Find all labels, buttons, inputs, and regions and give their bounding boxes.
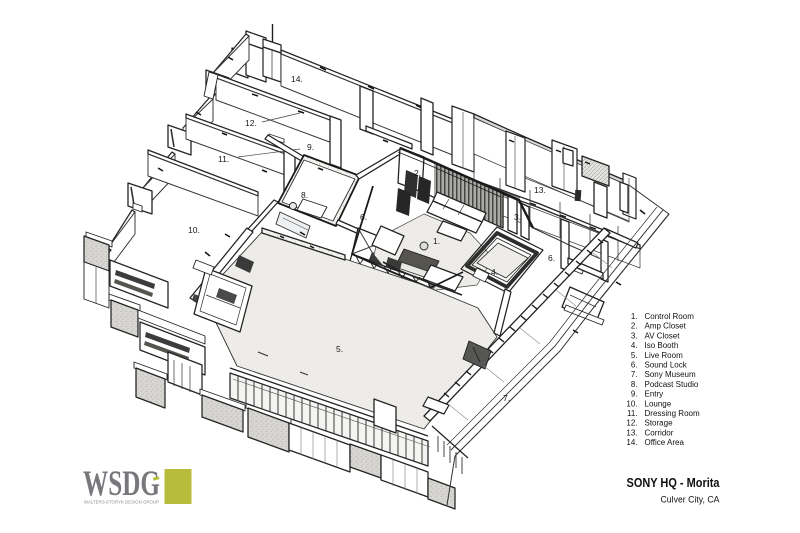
svg-text:12.: 12. (245, 118, 257, 128)
svg-text:5.: 5. (336, 344, 343, 354)
svg-text:4.: 4. (491, 267, 498, 277)
svg-text:Iso Booth: Iso Booth (645, 341, 679, 350)
svg-text:Corridor: Corridor (645, 428, 674, 437)
svg-text:13.: 13. (626, 428, 637, 437)
svg-text:12.: 12. (626, 419, 637, 428)
svg-text:Storage: Storage (645, 419, 674, 428)
svg-text:8.: 8. (631, 380, 638, 389)
svg-text:1.: 1. (631, 312, 638, 321)
svg-text:10.: 10. (188, 225, 200, 235)
svg-text:11.: 11. (218, 154, 229, 164)
svg-text:14.: 14. (291, 74, 303, 84)
svg-text:9.: 9. (631, 390, 638, 399)
svg-text:6.: 6. (631, 361, 638, 370)
svg-text:Culver City, CA: Culver City, CA (661, 495, 720, 505)
svg-text:Lounge: Lounge (645, 399, 672, 408)
svg-text:Podcast Studio: Podcast Studio (645, 380, 699, 389)
svg-text:Control Room: Control Room (645, 312, 695, 321)
svg-text:5.: 5. (631, 351, 638, 360)
svg-text:Amp Closet: Amp Closet (645, 322, 687, 331)
svg-text:Sony Museum: Sony Museum (645, 370, 696, 379)
svg-text:Office Area: Office Area (645, 438, 685, 447)
svg-text:13.: 13. (534, 185, 546, 195)
svg-text:SONY HQ - Morita: SONY HQ - Morita (627, 476, 721, 490)
svg-text:9.: 9. (307, 142, 314, 152)
svg-text:WALTERS-STORYK DESIGN GROUP: WALTERS-STORYK DESIGN GROUP (84, 500, 159, 505)
svg-text:4.: 4. (631, 341, 638, 350)
svg-text:2.: 2. (631, 322, 638, 331)
svg-text:7.: 7. (631, 370, 638, 379)
svg-text:Live Room: Live Room (645, 351, 684, 360)
svg-text:1.: 1. (433, 236, 440, 246)
svg-text:WSDG: WSDG (83, 463, 160, 503)
svg-text:6.: 6. (548, 253, 555, 263)
svg-text:14.: 14. (626, 438, 637, 447)
svg-text:Entry: Entry (645, 390, 664, 399)
svg-text:Sound Lock: Sound Lock (645, 361, 688, 370)
svg-text:Dressing Room: Dressing Room (645, 409, 700, 418)
svg-text:3.: 3. (514, 212, 521, 222)
svg-text:8.: 8. (301, 190, 308, 200)
svg-text:2.: 2. (414, 168, 421, 178)
svg-text:3.: 3. (631, 331, 638, 340)
svg-text:11.: 11. (627, 409, 638, 418)
svg-text:7.: 7. (503, 393, 510, 403)
svg-text:AV Closet: AV Closet (645, 331, 681, 340)
svg-text:10.: 10. (626, 399, 637, 408)
